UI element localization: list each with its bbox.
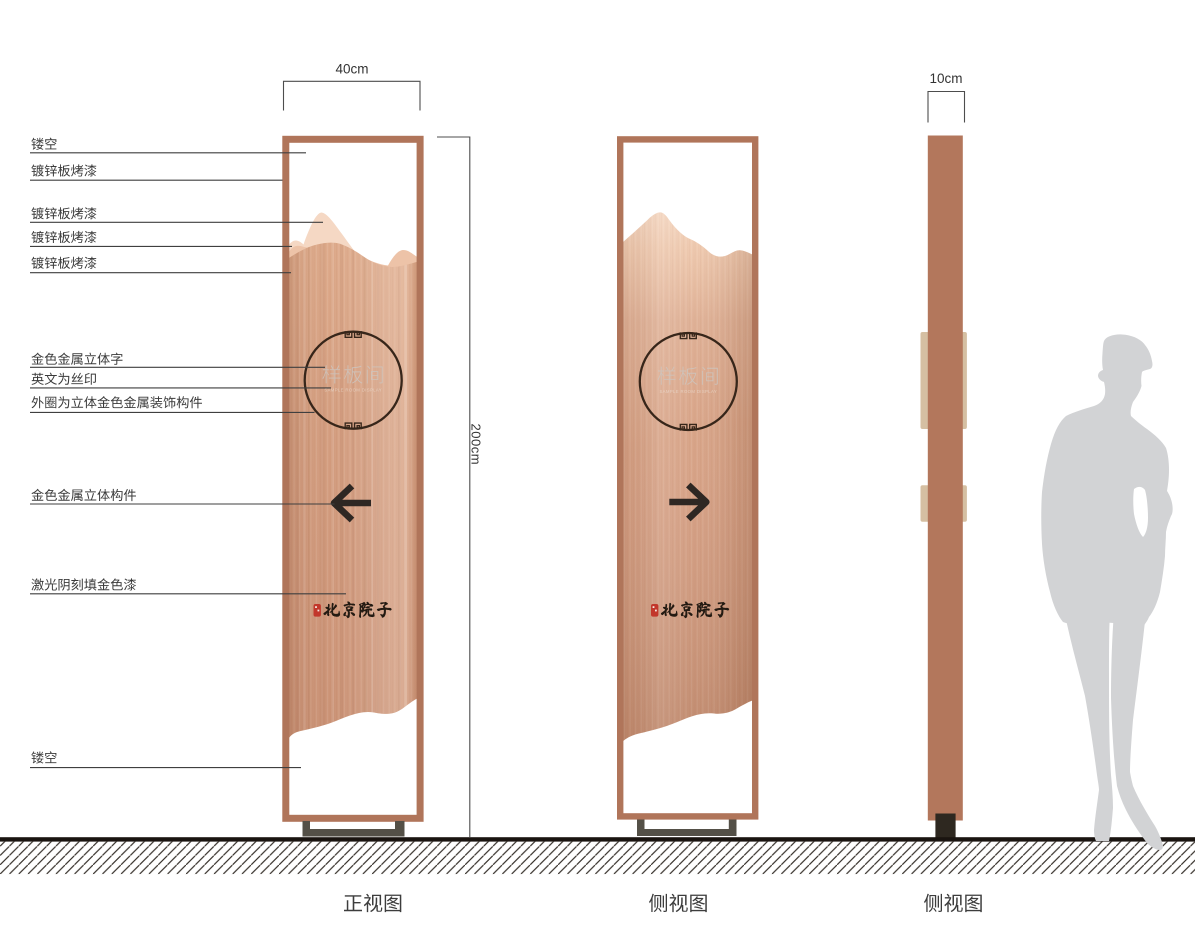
svg-text:SAMPLE ROOM DISPLAY: SAMPLE ROOM DISPLAY [324,388,382,393]
svg-text:40cm: 40cm [335,62,368,77]
svg-text:200cm: 200cm [469,424,484,466]
svg-text:10cm: 10cm [929,71,962,86]
svg-text:SAMPLE ROOM DISPLAY: SAMPLE ROOM DISPLAY [659,389,717,394]
